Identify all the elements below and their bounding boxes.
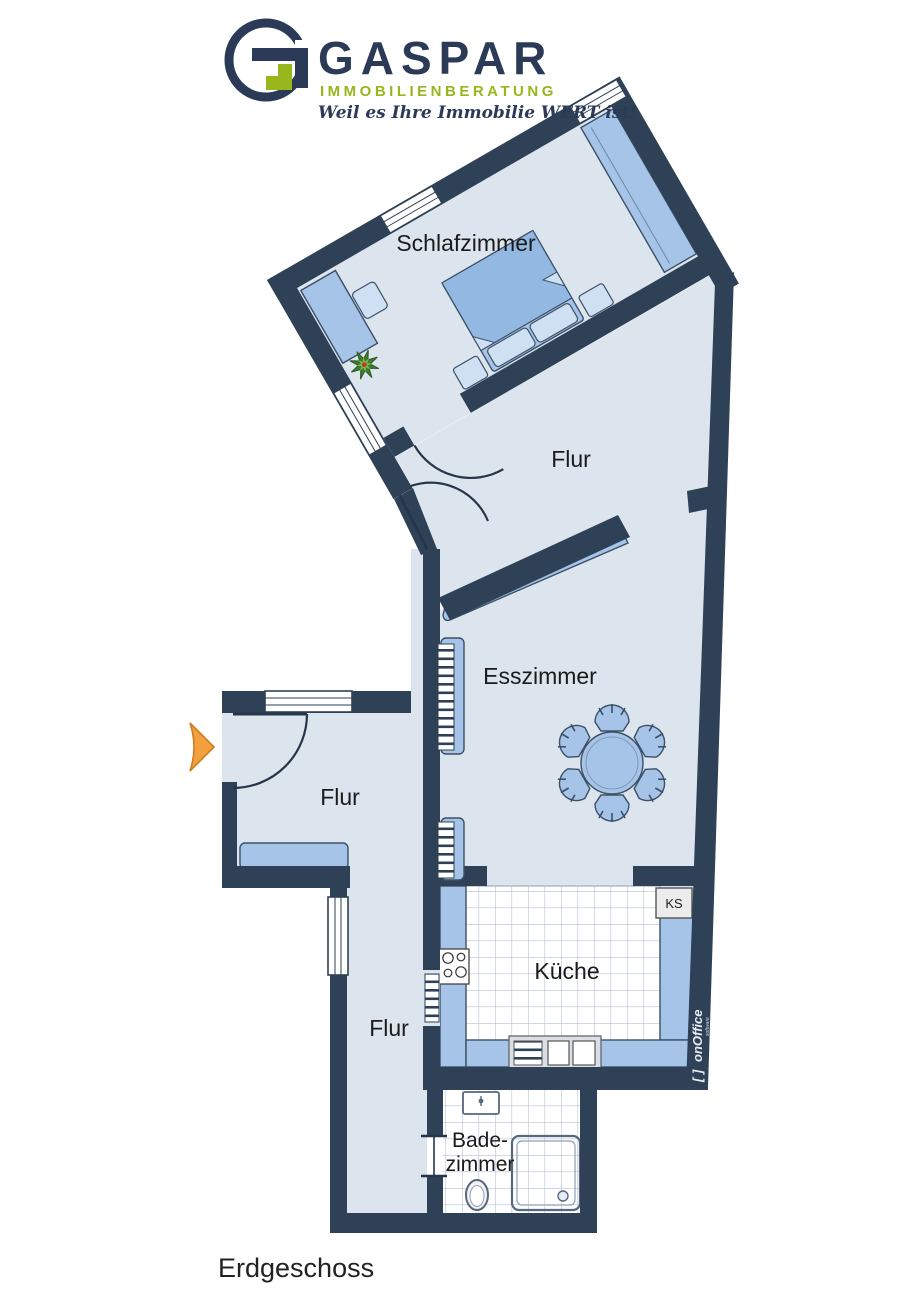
wall-bad-links-b [427, 1176, 443, 1213]
label-flur-eingang: Flur [320, 784, 360, 810]
floor-level-label: Erdgeschoss [218, 1253, 374, 1283]
logo-g-icon [229, 23, 325, 97]
label-badezimmer-1: Bade- [452, 1129, 508, 1152]
label-kueche: Küche [534, 958, 599, 984]
floorplan-canvas: Schlafzimmer Flur Esszimmer Flur Küche F… [0, 0, 920, 1302]
wall-eingang-unten [222, 866, 350, 888]
logo-subtitle-text: IMMOBILIENBERATUNG [320, 83, 557, 100]
label-esszimmer: Esszimmer [483, 663, 597, 689]
wall-bad-rechts [580, 1083, 597, 1233]
dining-table [581, 732, 643, 794]
entrance-opening [222, 713, 237, 782]
onoffice-sub: software [705, 1017, 711, 1036]
toilet [466, 1180, 488, 1210]
kitchen-sink [509, 1036, 601, 1070]
floor-flur-unten [347, 888, 427, 1213]
radiator-1 [438, 644, 454, 750]
floorplan-page: Schlafzimmer Flur Esszimmer Flur Küche F… [0, 0, 920, 1302]
floor-passage [411, 549, 423, 713]
label-flur-oben: Flur [551, 446, 591, 472]
wall-kueche-unten [423, 1067, 708, 1090]
wall-esszimmer-links [423, 549, 440, 972]
radiator-flur [425, 974, 439, 1022]
stove [439, 949, 469, 984]
onoffice-vendor: onOffice [690, 1010, 705, 1063]
logo: GASPAR IMMOBILIENBERATUNG Weil es Ihre I… [229, 23, 637, 123]
radiator-2 [438, 822, 454, 878]
entrance-arrow-icon [190, 723, 214, 771]
label-fridge: KS [665, 896, 683, 911]
floor-passage-sued [350, 860, 423, 890]
logo-tagline-text: Weil es Ihre Immobilie WERT ist! [318, 103, 637, 123]
label-flur-unten: Flur [369, 1015, 409, 1041]
kitchen-counter-right [660, 914, 693, 1040]
wall-sued [330, 1213, 597, 1233]
window-flur-unten [328, 897, 348, 975]
sideboard-flur-eingang [240, 843, 348, 869]
onoffice-brackets-icon: [ ] [690, 1069, 705, 1083]
washbasin [463, 1092, 499, 1114]
label-schlafzimmer: Schlafzimmer [396, 230, 536, 256]
wall-bad-links-a [427, 1090, 443, 1136]
window-eingang [265, 691, 352, 712]
wall-kueche-oben-b [633, 866, 708, 886]
label-badezimmer-2: zimmer [446, 1153, 515, 1176]
logo-brand-text: GASPAR [318, 32, 553, 84]
